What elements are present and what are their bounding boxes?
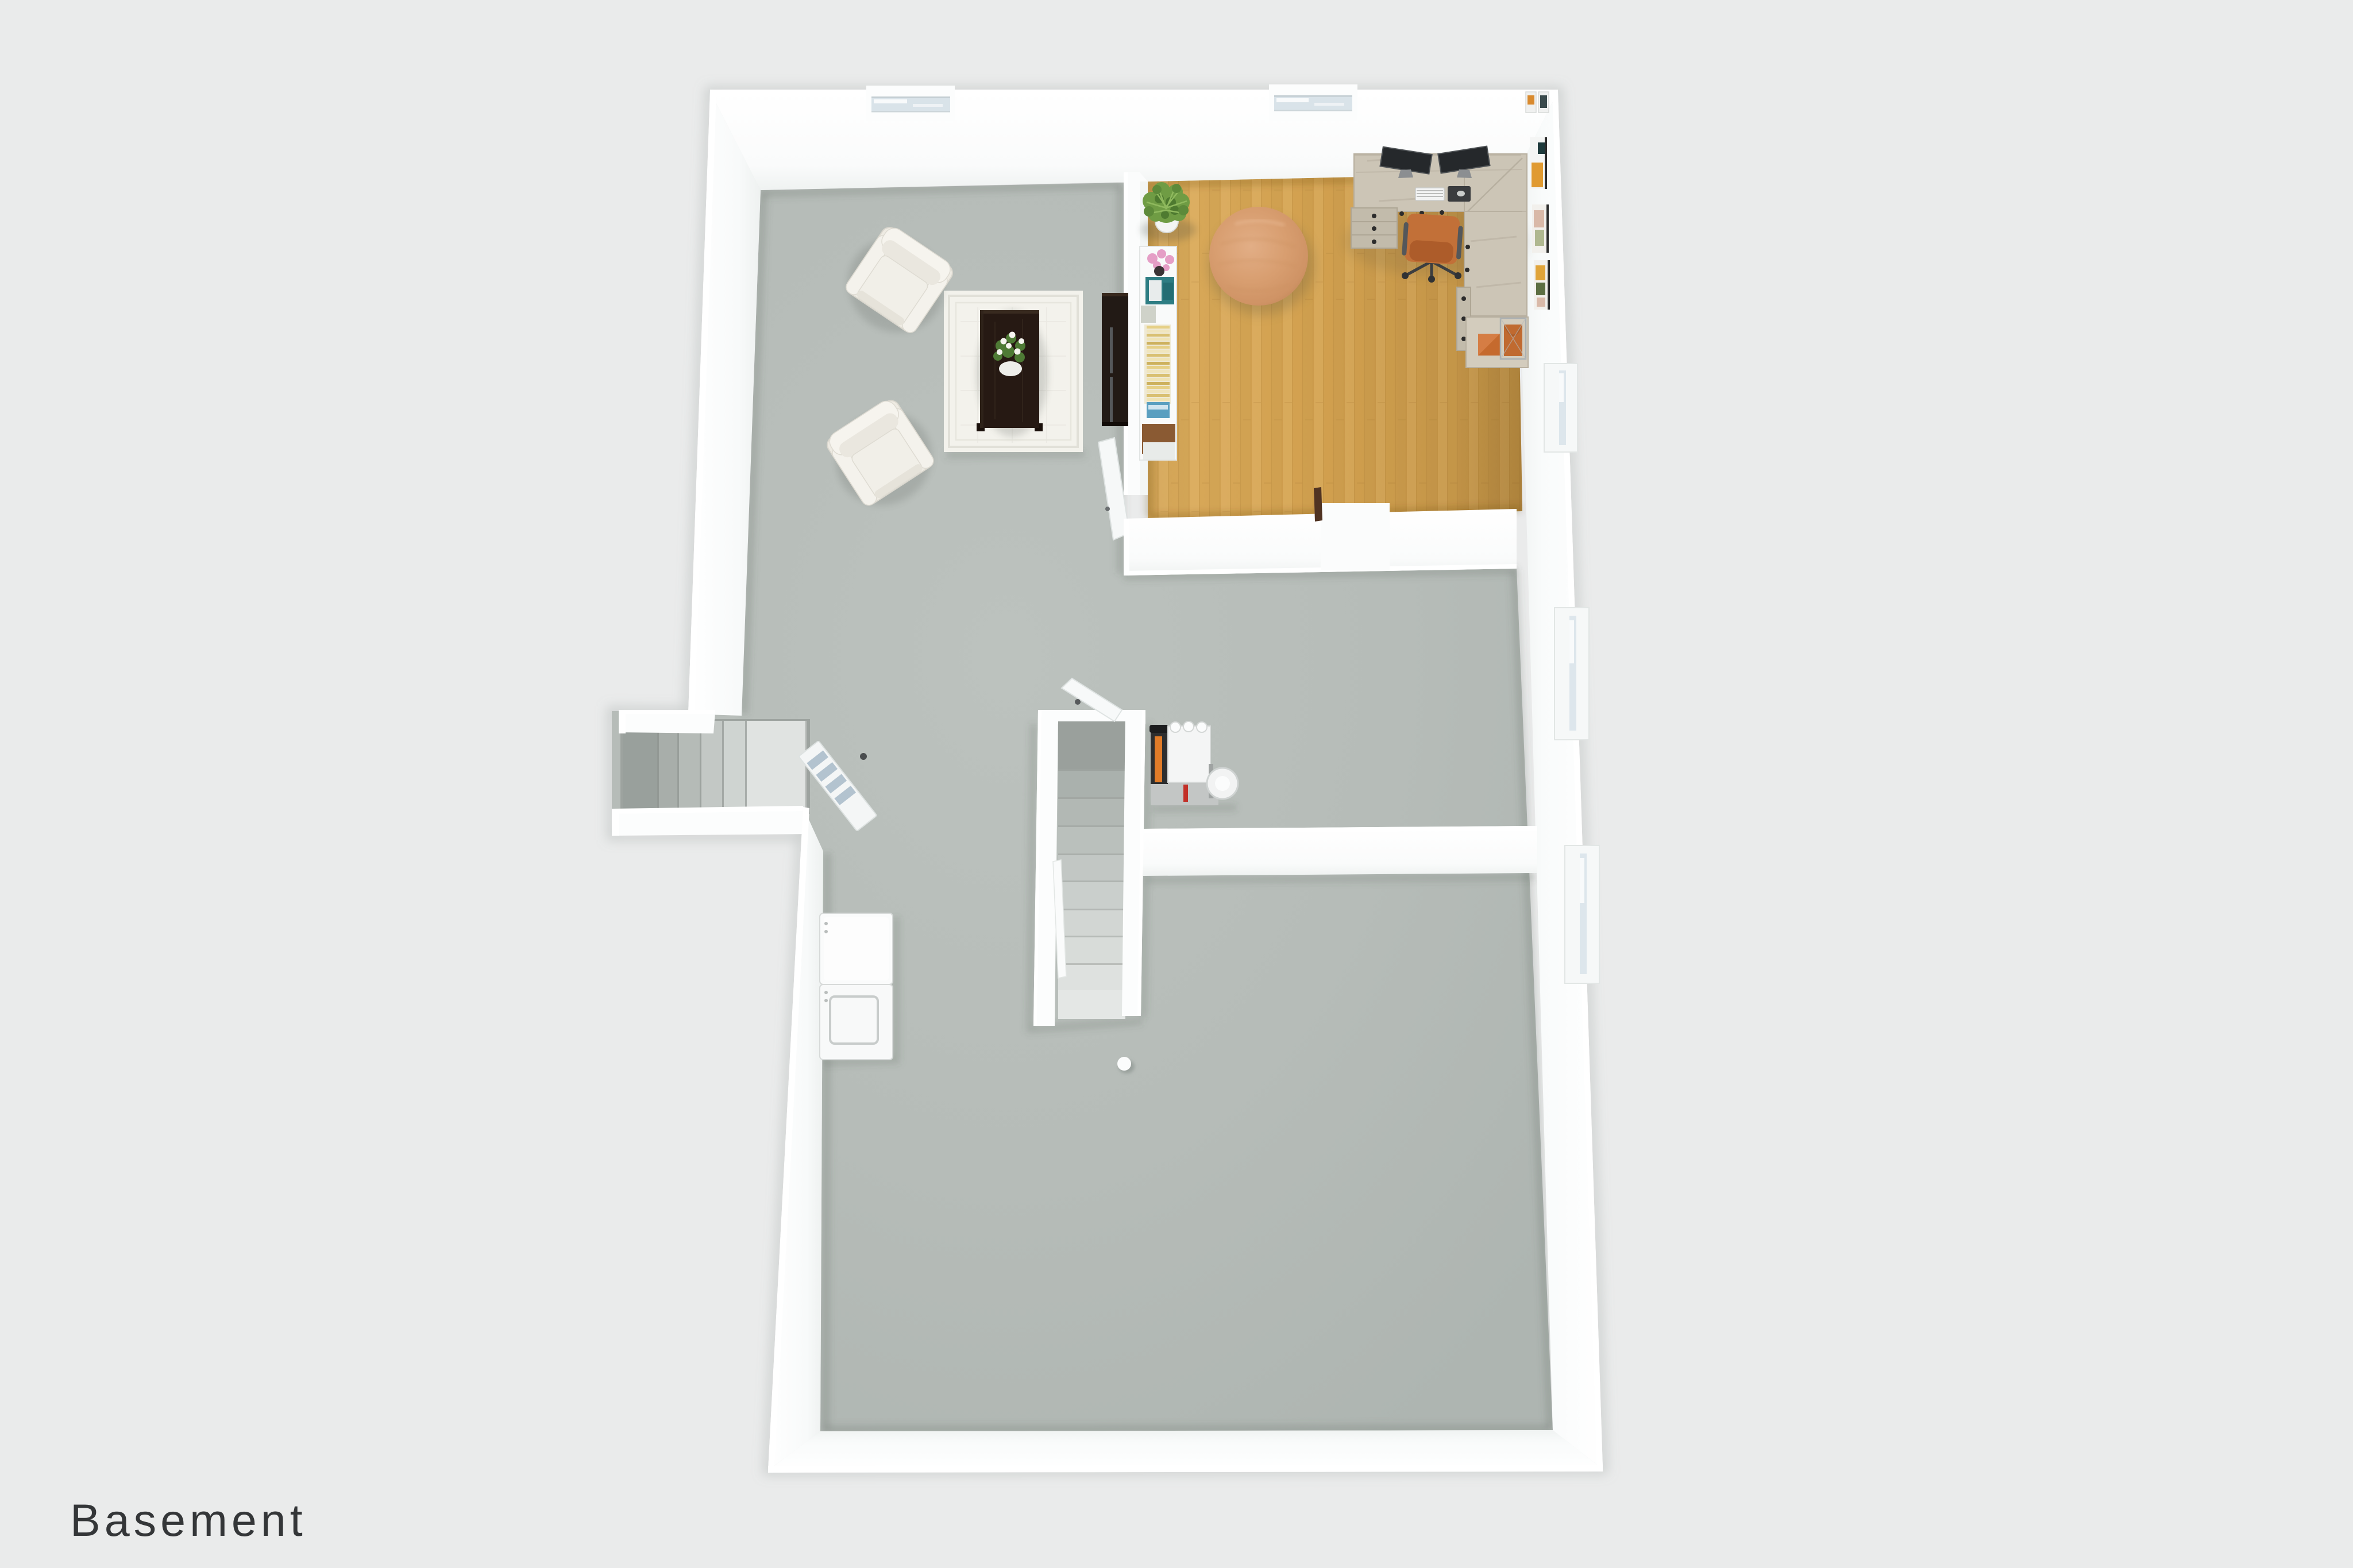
- svg-text:Basement: Basement: [70, 1494, 307, 1546]
